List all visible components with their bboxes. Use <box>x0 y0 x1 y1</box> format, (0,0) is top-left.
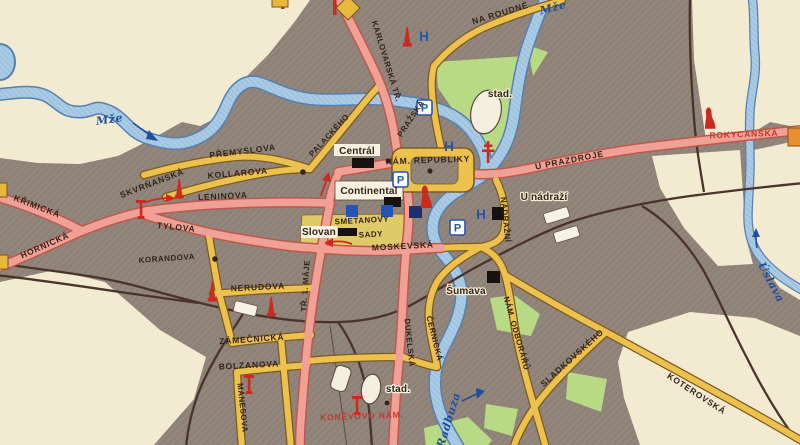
hotel-label-continental: Continental <box>340 186 397 197</box>
central-hotel-building <box>352 158 374 168</box>
junction-dot-tylova <box>212 256 218 262</box>
parking-icon-continental: P <box>393 172 408 187</box>
building-blue-1 <box>346 205 358 217</box>
hotel-icon-nadrazi: H <box>476 207 486 222</box>
hotel-label-slovan: Slovan <box>302 227 336 238</box>
hotel-icon-north: H <box>419 29 429 44</box>
stadium-label-south: stad. <box>386 384 410 395</box>
hotel-label-sumava: Šumava <box>446 284 486 297</box>
parking-icon-nadrazi: P <box>450 220 465 235</box>
building-navy <box>409 206 422 218</box>
hotel-label-central: Centrál <box>339 146 375 157</box>
hotel-icon-republiky: H <box>444 139 454 154</box>
stadium-label-north: stad. <box>488 89 512 100</box>
slovan-hotel-building <box>338 228 357 236</box>
sumava-hotel-building <box>487 271 500 283</box>
svg-text:P: P <box>397 175 404 187</box>
hotel-label-u-nadrazi: U nádraží <box>521 192 569 203</box>
city-map: P P P H H H <box>0 0 800 445</box>
park-label-sady: SADY <box>359 229 384 239</box>
svg-text:P: P <box>454 223 461 235</box>
stadium-dot <box>385 401 390 406</box>
map-canvas: P P P H H H <box>0 0 800 445</box>
republic-square-dot <box>427 168 432 173</box>
junction-dot-palackeho <box>300 169 306 175</box>
